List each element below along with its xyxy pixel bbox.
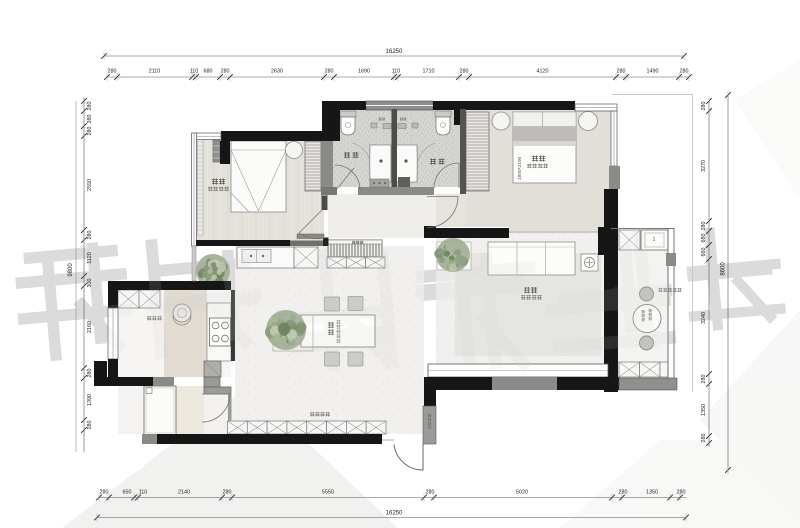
svg-text:1800*2100: 1800*2100 bbox=[517, 156, 523, 180]
svg-text:1: 1 bbox=[653, 237, 656, 243]
svg-text:280: 280 bbox=[701, 222, 707, 231]
svg-text:2630: 2630 bbox=[271, 69, 283, 75]
svg-text:1390: 1390 bbox=[87, 394, 93, 406]
svg-text:3240: 3240 bbox=[701, 312, 707, 324]
svg-text:280: 280 bbox=[221, 69, 230, 75]
svg-text:280: 280 bbox=[619, 490, 628, 496]
svg-text:280: 280 bbox=[87, 369, 93, 378]
svg-text:8600: 8600 bbox=[721, 262, 727, 276]
svg-text:280: 280 bbox=[100, 490, 109, 496]
svg-text:1710: 1710 bbox=[423, 69, 435, 75]
svg-text:2110: 2110 bbox=[149, 69, 161, 75]
svg-text:1350: 1350 bbox=[646, 490, 658, 496]
svg-text:2140: 2140 bbox=[178, 490, 190, 496]
svg-text:110: 110 bbox=[139, 490, 148, 496]
svg-text:1690: 1690 bbox=[358, 69, 370, 75]
svg-text:5550: 5550 bbox=[322, 490, 334, 496]
svg-text:280: 280 bbox=[701, 434, 707, 443]
svg-text:16250: 16250 bbox=[386, 49, 403, 55]
svg-text:280: 280 bbox=[680, 69, 689, 75]
svg-text:280: 280 bbox=[223, 490, 232, 496]
svg-text:280: 280 bbox=[87, 421, 93, 430]
svg-text:280: 280 bbox=[87, 231, 93, 240]
svg-text:280: 280 bbox=[701, 375, 707, 384]
svg-text:380: 380 bbox=[87, 115, 93, 124]
svg-text:660: 660 bbox=[701, 248, 707, 257]
svg-text:2550: 2550 bbox=[87, 179, 93, 191]
svg-text:680: 680 bbox=[701, 234, 707, 243]
svg-text:1120: 1120 bbox=[87, 252, 93, 264]
svg-text:280: 280 bbox=[460, 69, 469, 75]
svg-text:650: 650 bbox=[123, 490, 132, 496]
svg-text:16250: 16250 bbox=[386, 511, 403, 517]
svg-text:280: 280 bbox=[325, 69, 334, 75]
svg-text:110: 110 bbox=[190, 69, 199, 75]
svg-text:300: 300 bbox=[87, 279, 93, 288]
svg-text:4120: 4120 bbox=[537, 69, 549, 75]
svg-text:680: 680 bbox=[204, 69, 213, 75]
svg-text:280: 280 bbox=[617, 69, 626, 75]
svg-text:110: 110 bbox=[392, 69, 401, 75]
svg-text:280: 280 bbox=[108, 69, 117, 75]
svg-text:280: 280 bbox=[426, 490, 435, 496]
svg-text:280: 280 bbox=[87, 102, 93, 111]
svg-text:1350: 1350 bbox=[701, 404, 707, 416]
svg-text:280: 280 bbox=[87, 127, 93, 136]
svg-text:280: 280 bbox=[701, 102, 707, 111]
svg-text:9800: 9800 bbox=[68, 263, 74, 277]
svg-text:2160: 2160 bbox=[87, 321, 93, 333]
svg-text:1490: 1490 bbox=[647, 69, 659, 75]
svg-text:3270: 3270 bbox=[701, 160, 707, 172]
svg-text:5020: 5020 bbox=[516, 490, 528, 496]
svg-text:280: 280 bbox=[677, 490, 686, 496]
